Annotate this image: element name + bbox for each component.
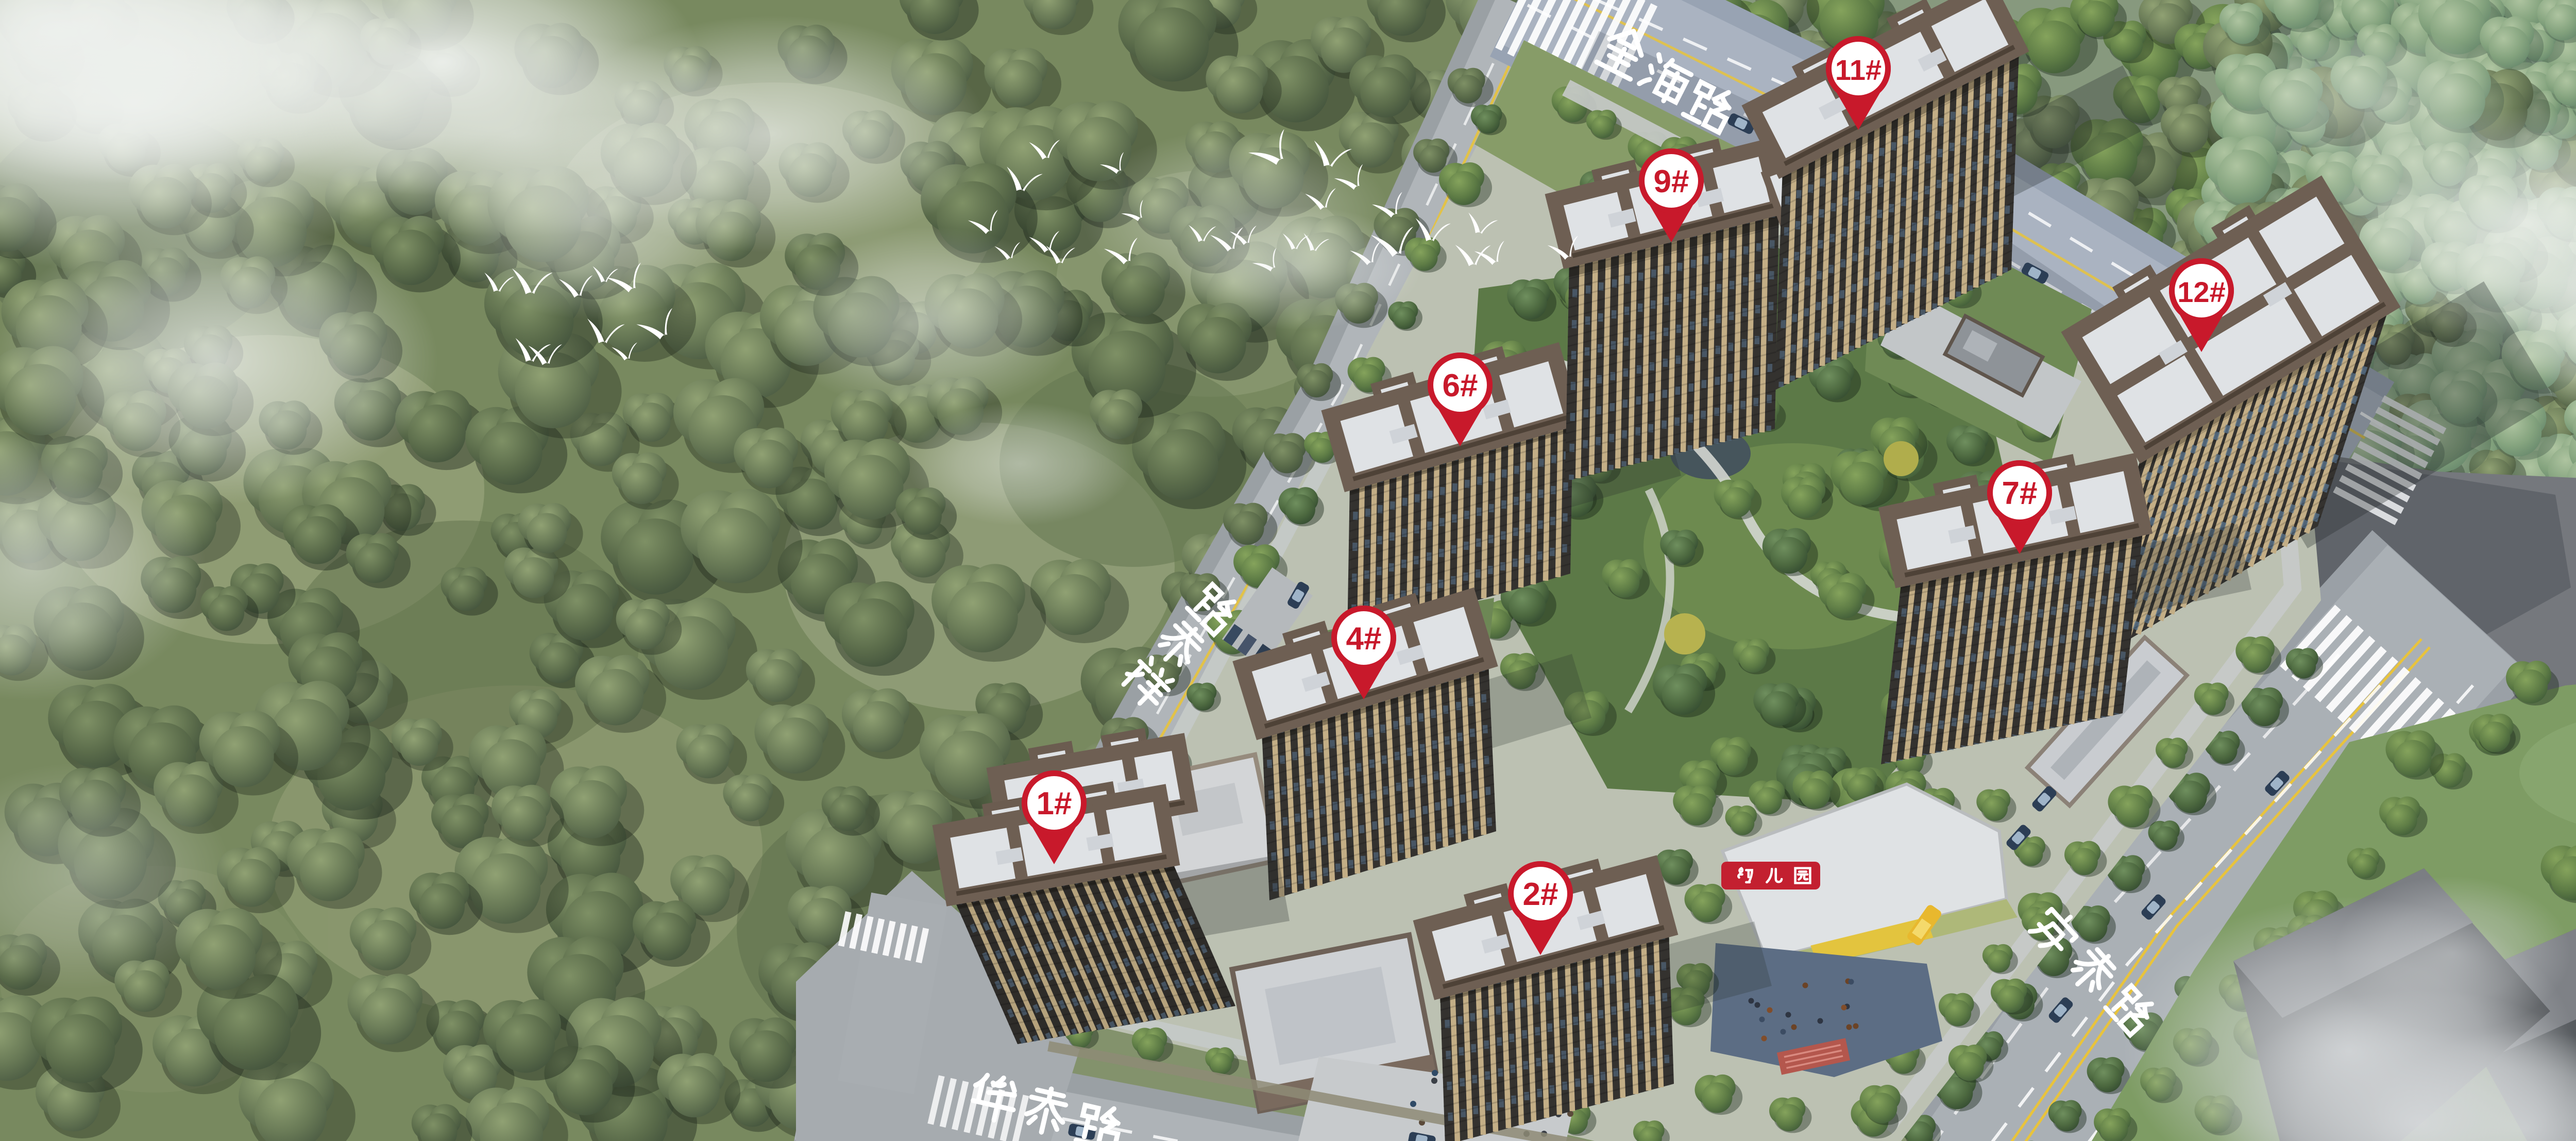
svg-text:6#: 6# (1443, 368, 1478, 404)
svg-text:4#: 4# (1346, 621, 1382, 657)
svg-text:1#: 1# (1037, 786, 1072, 821)
svg-text:2#: 2# (1523, 877, 1558, 912)
svg-text:7#: 7# (2002, 476, 2038, 511)
svg-text:11#: 11# (1835, 54, 1882, 86)
svg-text:9#: 9# (1654, 164, 1689, 199)
svg-text:12#: 12# (2177, 276, 2225, 308)
